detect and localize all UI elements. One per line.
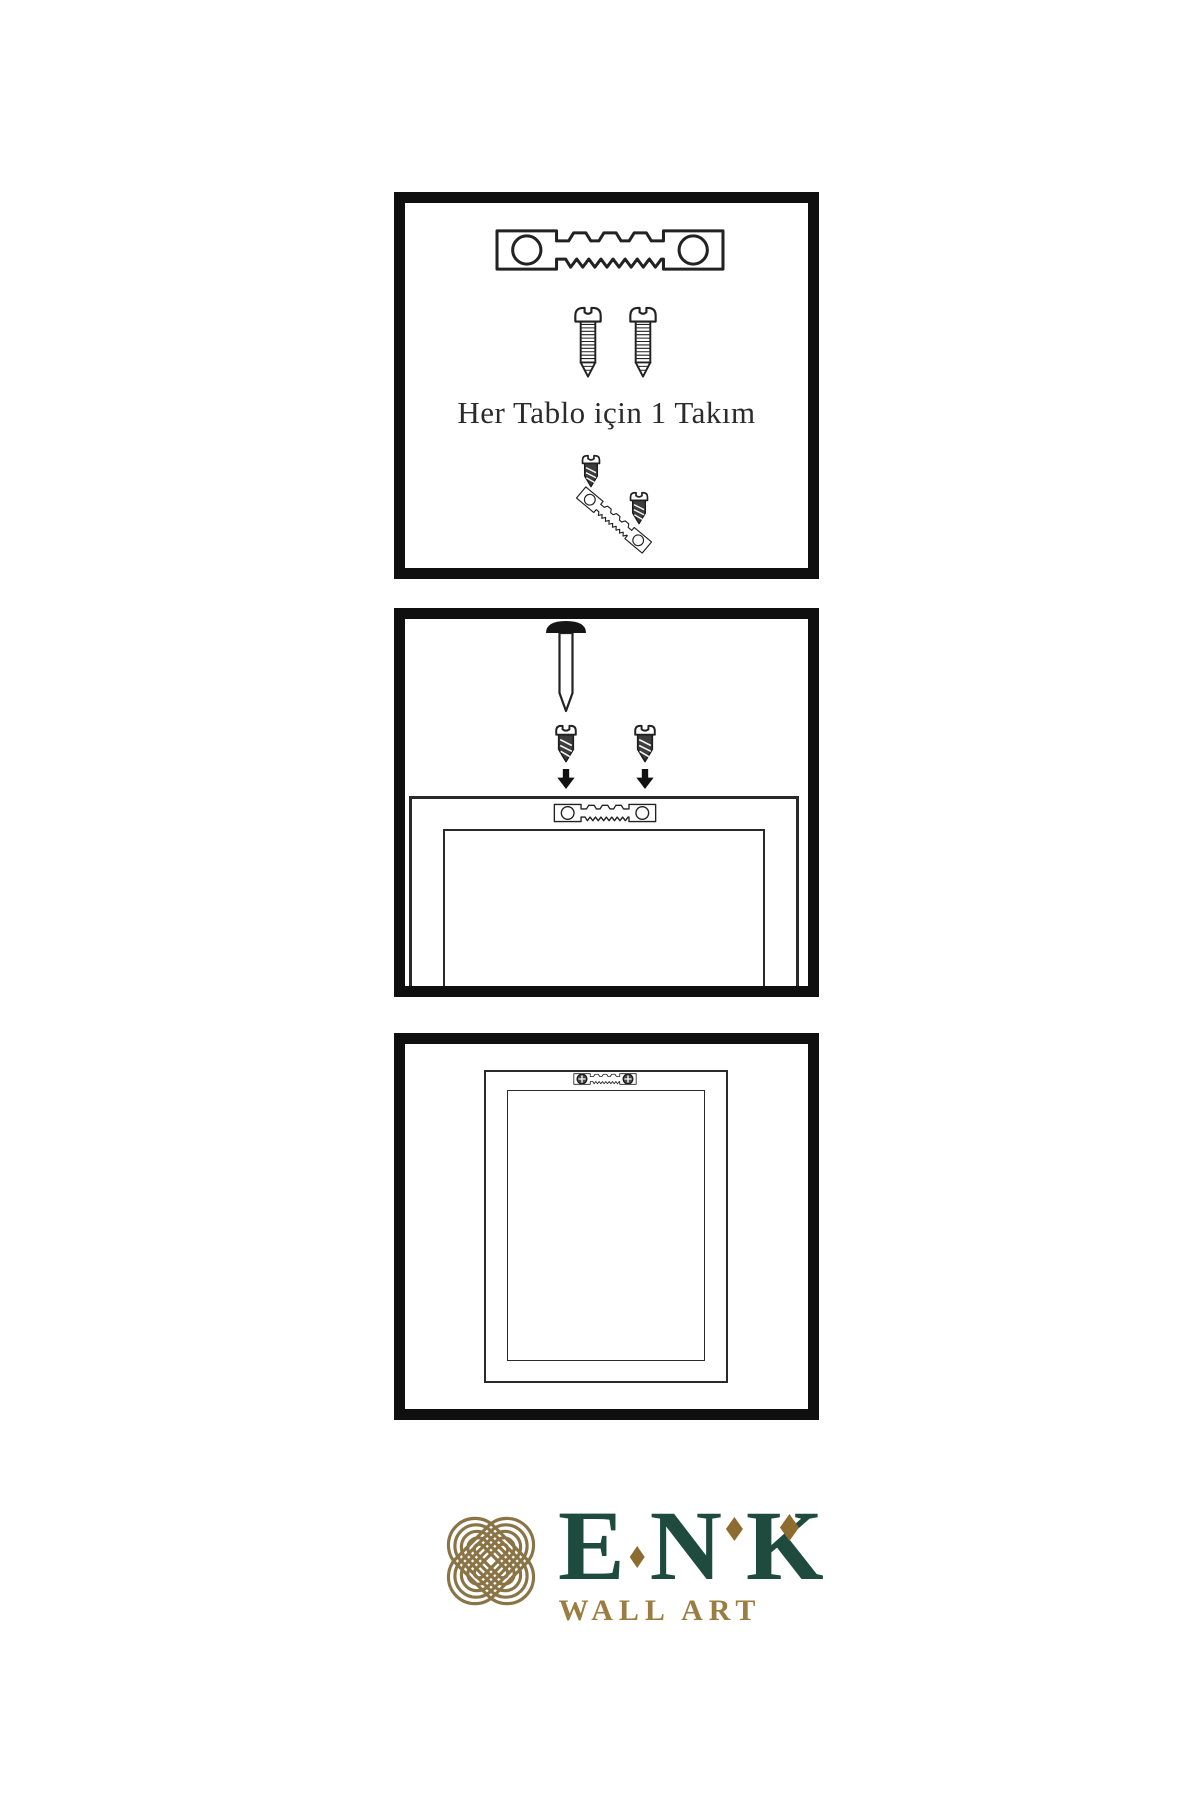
screw-icon	[627, 304, 659, 380]
frame-back-inner-outline	[443, 829, 765, 991]
brand-letter-k: K	[746, 1490, 824, 1601]
frame-inner-outline	[507, 1090, 705, 1361]
step-1-caption: Her Tablo için 1 Takım	[405, 396, 808, 430]
brand-letter-n: N	[650, 1496, 722, 1596]
dark-screw-icon	[580, 452, 602, 490]
dark-screw-icon	[632, 722, 658, 765]
dark-screw-icon	[553, 722, 579, 765]
step-1-panel: Her Tablo için 1 Takım	[394, 192, 819, 579]
sawtooth-hanger-icon	[553, 801, 657, 825]
brand-letter-k-wrap: K	[746, 1496, 824, 1596]
brand-letter-e: E	[558, 1496, 625, 1596]
sawtooth-hanger-icon	[494, 223, 726, 277]
wall-nail-icon	[544, 618, 588, 718]
brand-subtitle: WALL ART	[548, 1594, 772, 1628]
step-3-panel	[394, 1033, 819, 1420]
dark-screw-icon	[628, 489, 650, 527]
down-arrow-icon	[556, 769, 576, 789]
screw-icon	[572, 304, 604, 380]
diamond-accent-icon	[726, 1517, 743, 1541]
diamond-accent-icon	[630, 1546, 645, 1568]
down-arrow-icon	[635, 769, 655, 789]
step-2-panel	[394, 608, 819, 997]
instruction-sheet: Her Tablo için 1 Takım	[0, 0, 1200, 1800]
phillips-screw-icon	[622, 1073, 634, 1085]
interlocked-knot-icon	[432, 1495, 550, 1627]
brand-name: E N K	[558, 1496, 824, 1596]
brand-logo: E N K WALL ART	[420, 1490, 800, 1640]
phillips-screw-icon	[576, 1073, 588, 1085]
